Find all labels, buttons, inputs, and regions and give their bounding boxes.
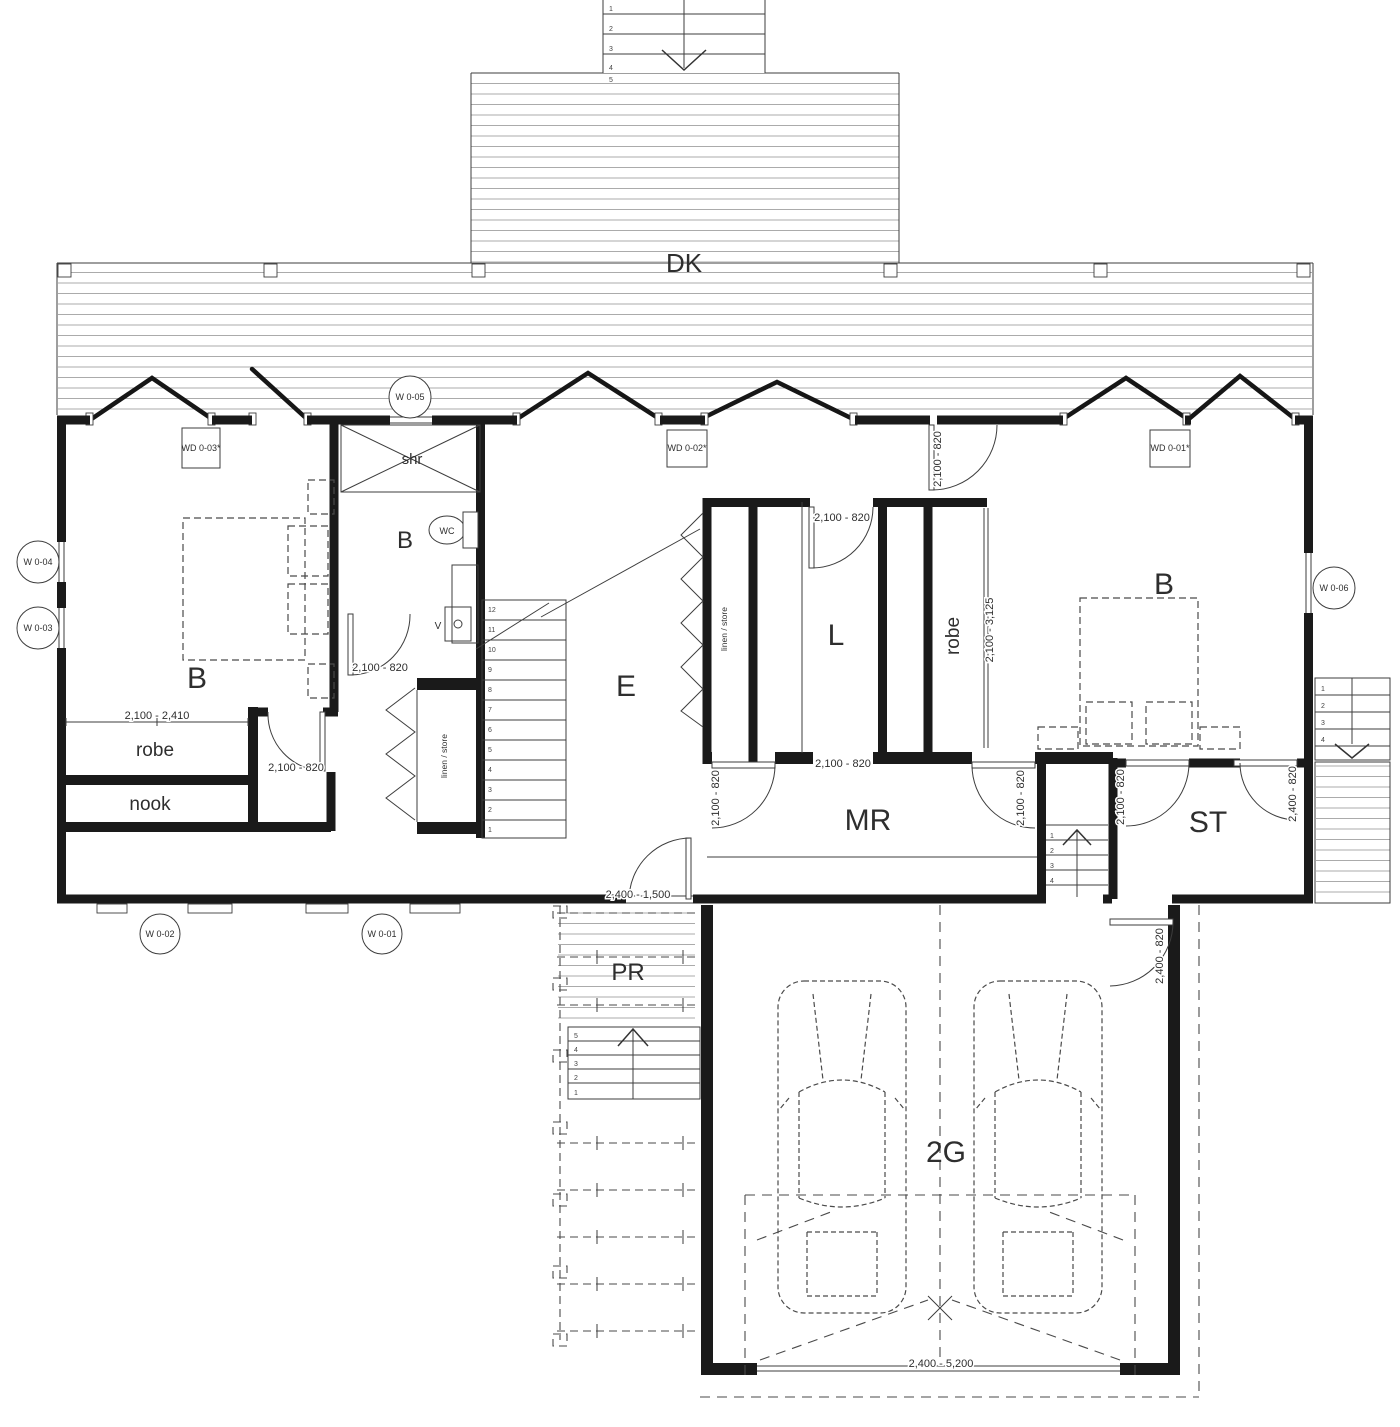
stair-number: 1	[1321, 686, 1325, 693]
dim-bedroom-right-door: 2,100 - 820	[932, 431, 944, 487]
side-landing-planks	[1316, 762, 1390, 902]
dim-bedroom-left-door: 2,100 - 820	[268, 762, 324, 774]
tag-label: W 0-01	[367, 929, 396, 939]
main-stair: 12 11 10 9 8 7 6 5 4 3 2 1	[476, 529, 700, 838]
bed-right	[1038, 598, 1240, 749]
window-sill	[410, 904, 460, 913]
tag-label: WD 0-02*	[667, 443, 707, 453]
dim-hall-opening: 2,100 - 820	[815, 758, 871, 770]
vanity-counter	[452, 565, 478, 643]
window-sill	[188, 904, 232, 913]
tag-label: W 0-04	[23, 557, 52, 567]
stair-number: 10	[488, 647, 496, 654]
tag-label: WD 0-01*	[1150, 443, 1190, 453]
main-deck-planks	[58, 264, 1312, 416]
window-sill	[97, 904, 127, 913]
dim-entry-door: 2,400 - 1,500	[606, 889, 671, 901]
store-right-door-leaf	[1234, 760, 1297, 766]
dim-store-right-door: 2,400 - 820	[1287, 766, 1299, 822]
stair-number: 9	[488, 667, 492, 674]
tag-label: W 0-02	[145, 929, 174, 939]
garage-entry-door-leaf	[1110, 919, 1173, 925]
room-label-entry: E	[616, 670, 636, 703]
porch-stair: 5 4 3 2 1	[568, 1027, 700, 1099]
stair-number: 2	[609, 26, 613, 33]
room-label-bedroom-left: B	[187, 662, 207, 695]
stair-number: 3	[609, 46, 613, 53]
stair-number: 3	[488, 787, 492, 794]
mudroom-left-door-leaf	[712, 762, 775, 768]
stair-number: 4	[488, 767, 492, 774]
stair-number: 2	[1321, 703, 1325, 710]
store-left-door-leaf	[1126, 760, 1189, 766]
room-label-porch: PR	[611, 959, 644, 986]
stair-number: 5	[609, 77, 613, 84]
fixture-label-robe: robe	[136, 740, 174, 761]
dim-garage-entry-door: 2,400 - 820	[1154, 928, 1166, 984]
tag-label: W 0-03	[23, 623, 52, 633]
stair-number: 1	[1050, 833, 1054, 840]
fixture-label-vanity: V	[435, 621, 442, 632]
room-label-garage: 2G	[926, 1136, 966, 1169]
top-stair: 1 2 3 4 5	[603, 0, 765, 84]
dim-robe-sliding: 2,100 - 3,125	[984, 598, 996, 663]
fixture-label-robe-inner: robe	[943, 617, 964, 655]
stair-break-line	[476, 529, 700, 649]
accordion-door-hall	[386, 688, 415, 820]
dim-garage-door: 2,400 - 5,200	[909, 1358, 974, 1370]
upper-deck-planks	[471, 74, 899, 262]
stair-number: 4	[609, 65, 613, 72]
fixture-label-linen-inner: linen / store	[719, 607, 729, 651]
fixture-label-toilet: WC	[440, 526, 455, 536]
dim-living-door: 2,100 - 820	[814, 512, 870, 524]
toilet-cistern	[463, 512, 478, 548]
tag-label: W 0-06	[1319, 583, 1348, 593]
floor-plan-canvas: 1 2 3 4 5 1 2 3 4	[0, 0, 1400, 1427]
windows	[59, 417, 1311, 1371]
stair-number: 4	[574, 1047, 578, 1054]
stair-number: 5	[488, 747, 492, 754]
stair-number: 3	[1050, 863, 1054, 870]
mudroom-right-door-leaf	[972, 762, 1035, 768]
car-left	[778, 981, 906, 1313]
stair-number: 4	[1050, 878, 1054, 885]
stair-number: 3	[1321, 720, 1325, 727]
basin-drain	[454, 620, 462, 628]
stair-number: 6	[488, 727, 492, 734]
stair-number: 8	[488, 687, 492, 694]
room-label-bedroom-right: B	[1154, 568, 1174, 601]
tag-label: WD 0-03*	[181, 443, 221, 453]
stair-number: 1	[574, 1090, 578, 1097]
stair-number: 11	[488, 627, 495, 634]
deck-area	[57, 73, 1390, 1026]
accordion-door-entry	[681, 513, 703, 727]
window-w06	[1306, 553, 1311, 613]
stair-number: 1	[609, 6, 613, 13]
fixture-label-shower: shr	[402, 451, 423, 468]
stair-number: 3	[574, 1061, 578, 1068]
dim-mudroom-right-door: 2,100 - 820	[1015, 770, 1027, 826]
tag-label: W 0-05	[395, 392, 424, 402]
room-label-bathroom: B	[397, 527, 413, 554]
car-right	[974, 981, 1102, 1313]
room-label-deck: DK	[666, 248, 703, 278]
stair-number: 2	[1050, 848, 1054, 855]
stair-number: 2	[574, 1075, 578, 1082]
stair-number: 7	[488, 707, 492, 714]
stair-number: 4	[1321, 737, 1325, 744]
room-label-mudroom: MR	[845, 804, 892, 837]
right-stair: 1 2 3 4	[1315, 678, 1390, 760]
room-label-store: ST	[1189, 806, 1227, 839]
stair-number: 12	[488, 607, 496, 614]
stair-number: 2	[488, 807, 492, 814]
stair-number: 1	[488, 827, 492, 834]
fixture-label-nook: nook	[129, 794, 171, 815]
floor-plan-drawing: 1 2 3 4 5 1 2 3 4	[0, 0, 1400, 1427]
window-sill	[306, 904, 348, 913]
vanity-basin	[445, 607, 471, 641]
dim-robe-opening: 2,100 - 2,410	[125, 710, 190, 722]
room-label-living: L	[828, 619, 845, 652]
dim-store-left-door: 2,100 - 820	[1115, 769, 1127, 825]
fixture-label-linen-hall: linen / store	[439, 734, 449, 778]
dim-mudroom-left-door: 2,100 - 820	[710, 770, 722, 826]
stair-number: 5	[574, 1033, 578, 1040]
dim-bathroom-door: 2,100 - 820	[352, 662, 408, 674]
entry-door-leaf	[686, 838, 691, 899]
fixtures	[66, 425, 1240, 857]
garage-side-stair: 1 2 3 4	[1046, 825, 1108, 897]
